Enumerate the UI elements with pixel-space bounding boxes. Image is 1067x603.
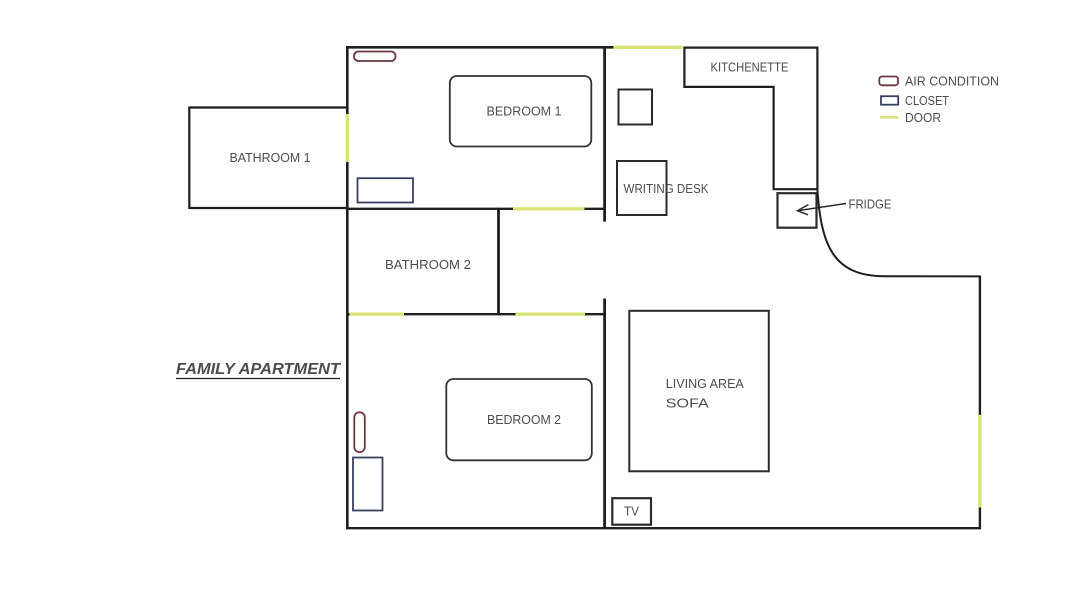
svg-text:LIVING AREA: LIVING AREA <box>666 377 745 391</box>
svg-text:CLOSET: CLOSET <box>905 94 949 108</box>
svg-text:BATHROOM 1: BATHROOM 1 <box>230 151 311 165</box>
svg-text:FRIDGE: FRIDGE <box>849 197 892 211</box>
svg-text:TV: TV <box>624 505 640 519</box>
svg-text:BATHROOM 2: BATHROOM 2 <box>385 258 471 272</box>
svg-text:DOOR: DOOR <box>905 111 941 125</box>
svg-text:AIR CONDITION: AIR CONDITION <box>905 74 999 88</box>
svg-text:SOFA: SOFA <box>666 396 710 410</box>
svg-text:KITCHENETTE: KITCHENETTE <box>711 61 789 75</box>
svg-text:FAMILY APARTMENT: FAMILY APARTMENT <box>176 361 341 378</box>
svg-text:WRITING DESK: WRITING DESK <box>624 182 710 196</box>
svg-text:BEDROOM 1: BEDROOM 1 <box>487 105 562 119</box>
svg-text:BEDROOM 2: BEDROOM 2 <box>487 413 561 427</box>
